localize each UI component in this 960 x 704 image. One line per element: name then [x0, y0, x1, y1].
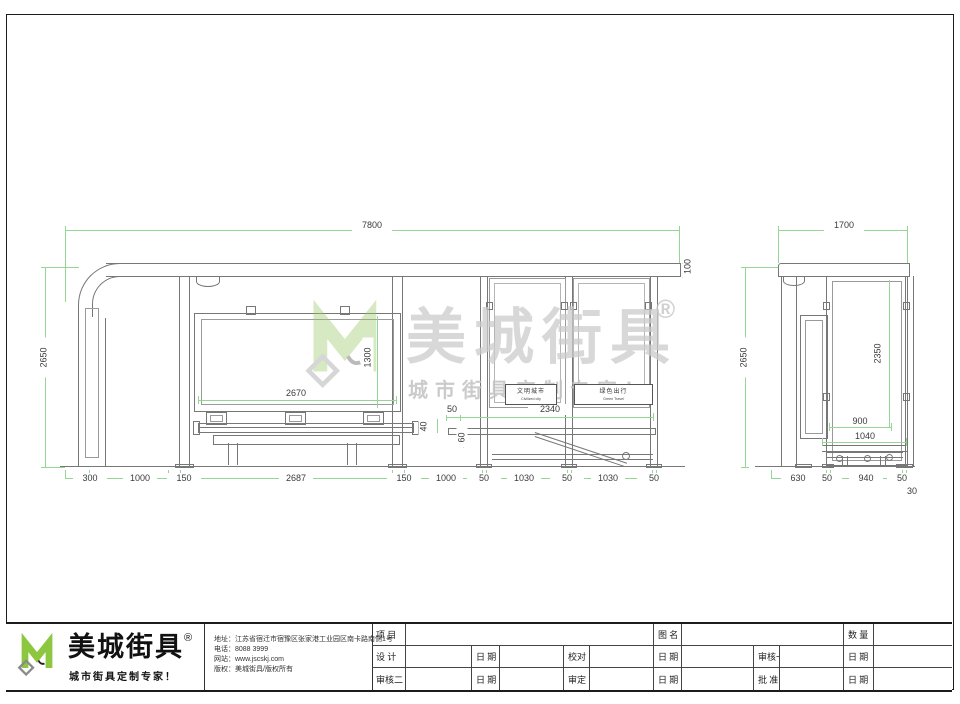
field-approve-label: 审定 [564, 668, 590, 690]
sign2-en-text: Green Travel [603, 396, 624, 401]
sign-box-green-travel: 绿色出行 Green Travel [574, 384, 653, 405]
sign2-cn-text: 绿色出行 [599, 389, 627, 396]
dim-label: 50 [812, 473, 842, 484]
roof-lamp [196, 276, 220, 287]
side-post-left [781, 276, 797, 467]
dim-label: 940 [849, 473, 883, 484]
field-date-value [500, 646, 564, 668]
dim-900: 900 [843, 416, 877, 427]
sign-box-civilized-city: 文明城市 Civilized city [505, 384, 557, 405]
dim-100: 100 [683, 255, 694, 279]
field-review2-label: 审核二 [372, 668, 406, 690]
dim-1300: 1300 [363, 338, 374, 378]
dim-label: 150 [387, 473, 421, 484]
field-ratify-label: 批 准 [754, 668, 780, 690]
company-info: 地址：江苏省宿迁市宿豫区张家港工业园区南卡路南侧1号 电话：8088 3999 … [214, 635, 374, 675]
dim-2340: 2340 [528, 404, 572, 415]
field-drawing-name-label: 图 名 [654, 624, 682, 646]
dim-label: 1030 [507, 473, 541, 484]
sign1-en-text: Civilized city [521, 396, 541, 401]
sign1-cn-text: 文明城市 [517, 389, 545, 396]
bench-leg-2 [347, 443, 357, 465]
title-block: 美城街具® 城市街具定制专家！ 地址：江苏省宿迁市宿豫区张家港工业园区南卡路南侧… [6, 622, 952, 692]
dim-label: 50 [637, 473, 671, 484]
brand-logo-icon [16, 632, 64, 680]
field-date-label: 日 期 [472, 668, 500, 690]
dim-label: 1000 [123, 473, 157, 484]
dim-label: 50 [467, 473, 501, 484]
dim-2670: 2670 [276, 388, 316, 399]
field-date-label: 日 期 [844, 668, 874, 690]
title-logo-area: 美城街具® 城市街具定制专家！ [6, 624, 204, 690]
dim-2650-front: 2650 [39, 338, 50, 378]
field-date-value [874, 646, 952, 668]
dim-60: 60 [457, 428, 468, 448]
roof-canopy [106, 263, 681, 277]
field-design-value [406, 646, 472, 668]
field-quantity-label: 数 量 [844, 624, 874, 646]
drawing-sheet: 美城街具 ® 城市街具定制专家！ 7800 2650 [0, 0, 960, 704]
ground-line-front [60, 466, 685, 467]
dim-label: 630 [781, 473, 815, 484]
dim-label: 1000 [429, 473, 463, 484]
field-ratify-value [780, 668, 844, 690]
side-bench-top [822, 445, 907, 452]
company-phone: 电话：8088 3999 [214, 645, 374, 655]
company-tagline: 城市街具定制专家！ [69, 668, 177, 683]
dim-40: 40 [419, 417, 430, 437]
company-copyright: 版权：美城街具/版权所有 [214, 665, 374, 675]
field-date-label: 日 期 [844, 646, 874, 668]
company-name: 美城街具 [68, 632, 184, 662]
field-date-value [682, 668, 754, 690]
field-review1-value [780, 646, 844, 668]
field-proofread-label: 校对 [564, 646, 590, 668]
dim-1040: 1040 [845, 431, 885, 442]
dim-label: 50 [550, 473, 584, 484]
post-side-panel [85, 308, 99, 458]
bench-leg-1 [228, 443, 238, 465]
dim-7800: 7800 [352, 220, 392, 231]
field-date-value [500, 668, 564, 690]
field-project-value [406, 624, 654, 646]
dim-label: 50 [887, 473, 917, 484]
roof-side [778, 263, 910, 277]
bench-shelf [213, 435, 400, 445]
ground-line-side [755, 466, 915, 467]
dim-label: 2687 [279, 473, 313, 484]
field-date-value [682, 646, 754, 668]
dim-label: 1030 [591, 473, 625, 484]
field-date-label: 日 期 [654, 668, 682, 690]
lean-rail [448, 428, 656, 435]
dim-30: 30 [898, 486, 926, 497]
dim-2650-side: 2650 [739, 338, 750, 378]
field-design-label: 设 计 [372, 646, 406, 668]
dim-2350: 2350 [873, 334, 884, 374]
dim-label: 300 [73, 473, 107, 484]
field-approve-value [590, 668, 654, 690]
dim-1700: 1700 [824, 220, 864, 231]
dim-50-small: 50 [440, 404, 464, 415]
reg-mark: ® [184, 632, 192, 644]
field-date-value [874, 668, 952, 690]
field-date-label: 日 期 [654, 646, 682, 668]
column-1 [179, 276, 190, 467]
field-proofread-value [590, 646, 654, 668]
field-quantity-value [874, 624, 952, 646]
field-review2-value [406, 668, 472, 690]
field-review1-label: 审核一 [754, 646, 780, 668]
bench-rail [198, 423, 414, 433]
field-date-label: 日 期 [472, 646, 500, 668]
field-drawing-name-value [682, 624, 844, 646]
company-website: 网站：www.jscskj.com [214, 655, 374, 665]
title-table: 项 目 图 名 数 量 设 计 日 期 校对 日 期 审核一 日 期 审核二 日… [372, 624, 952, 690]
field-project-label: 项 目 [372, 624, 406, 646]
dim-label: 150 [167, 473, 201, 484]
company-address: 地址：江苏省宿迁市宿豫区张家港工业园区南卡路南侧1号 [214, 635, 374, 645]
